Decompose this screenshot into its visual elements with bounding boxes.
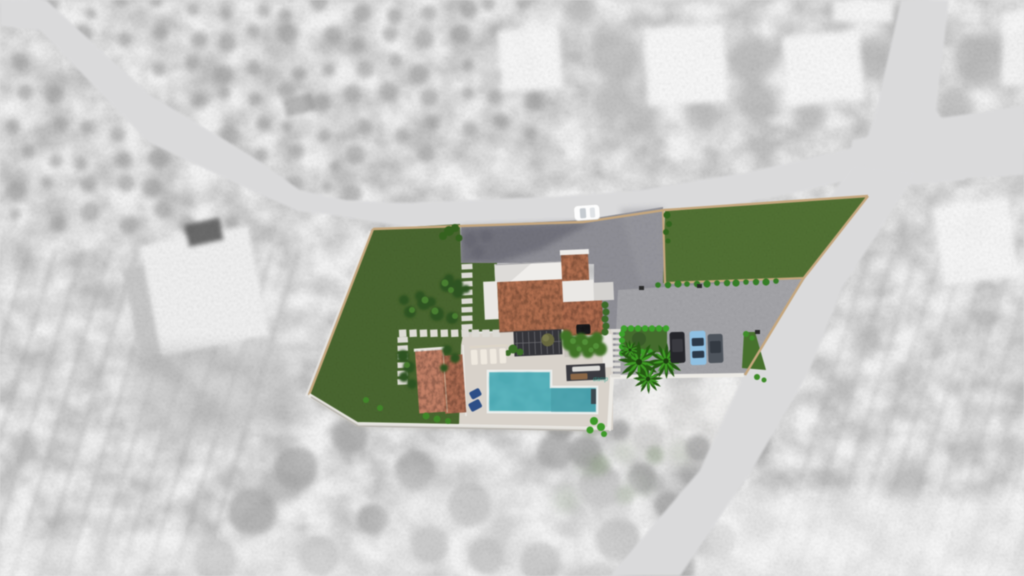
svg-text:damp: damp	[593, 377, 609, 383]
